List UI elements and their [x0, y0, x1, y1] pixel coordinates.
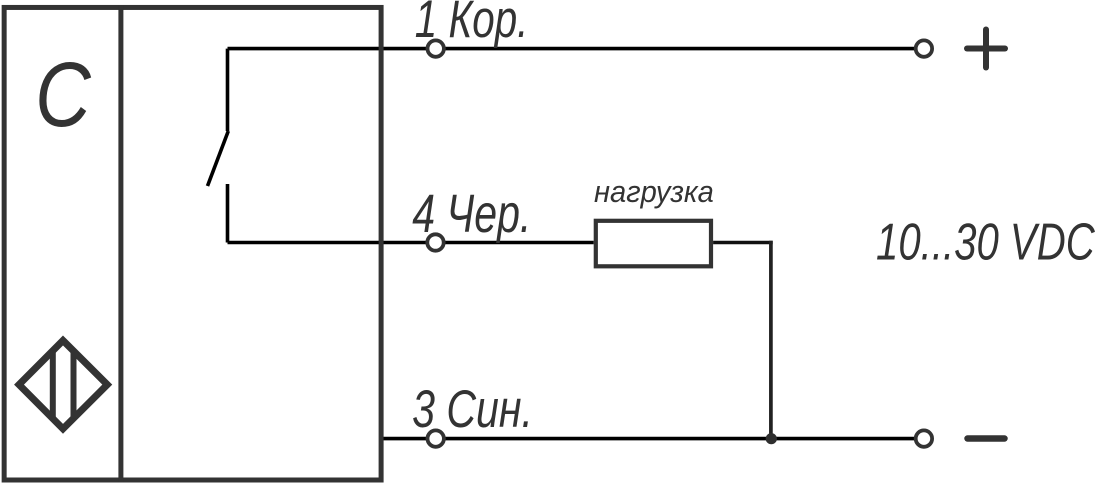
svg-text:4 Чер.: 4 Чер.	[412, 185, 531, 244]
svg-text:3 Син.: 3 Син.	[412, 380, 533, 439]
svg-text:10...30 VDC: 10...30 VDC	[876, 212, 1095, 270]
svg-text:1 Кор.: 1 Кор.	[415, 0, 529, 48]
svg-text:C: C	[35, 43, 91, 146]
svg-text:нагрузка: нагрузка	[594, 175, 714, 209]
